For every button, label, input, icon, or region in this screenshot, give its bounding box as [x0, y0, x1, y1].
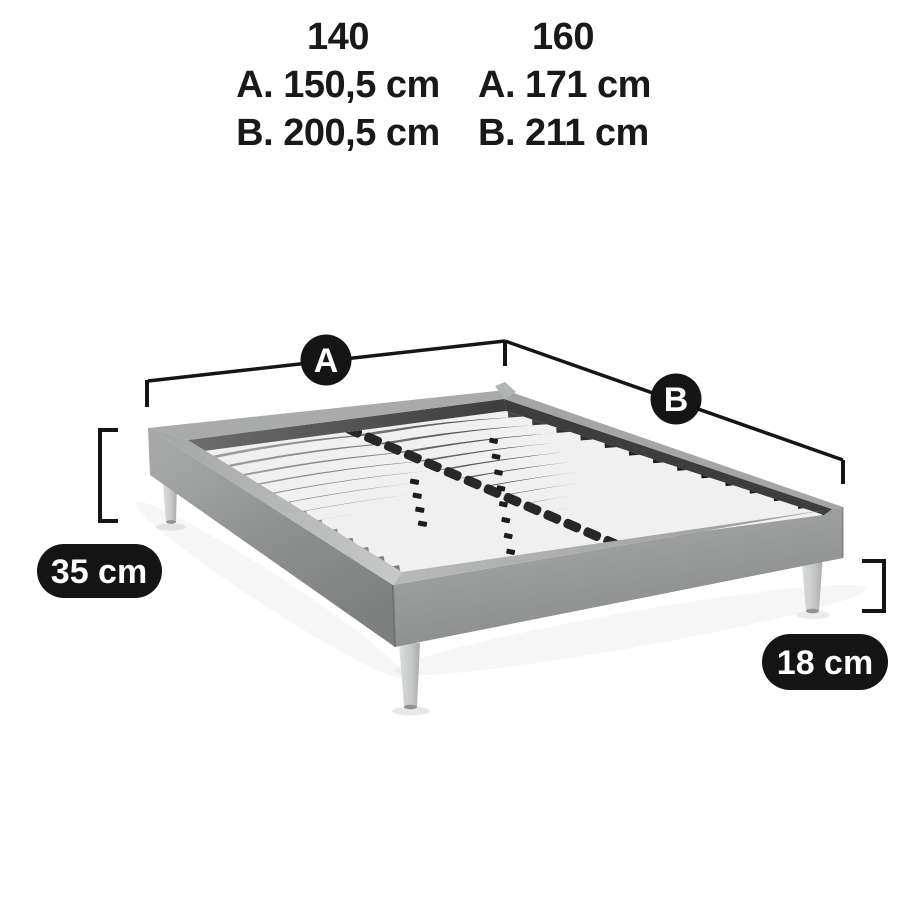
- leg-height-bracket: [862, 561, 884, 611]
- bed-leg-front: [399, 643, 420, 709]
- product-dimension-diagram: 140 A. 150,5 cm B. 200,5 cm 160 A. 171 c…: [0, 0, 920, 920]
- marker-b-label: B: [664, 381, 689, 419]
- total-height-badge: 35 cm: [37, 544, 162, 598]
- leg-height-badge: 18 cm: [762, 634, 888, 690]
- total-height-badge-label: 35 cm: [51, 553, 147, 591]
- marker-b: B: [651, 374, 702, 425]
- bed-frame-illustration: A B 35 cm 18 cm: [0, 0, 920, 920]
- leg-height-badge-label: 18 cm: [777, 644, 873, 682]
- marker-a: A: [301, 335, 352, 386]
- marker-a-label: A: [314, 342, 339, 380]
- total-height-bracket: [100, 430, 118, 521]
